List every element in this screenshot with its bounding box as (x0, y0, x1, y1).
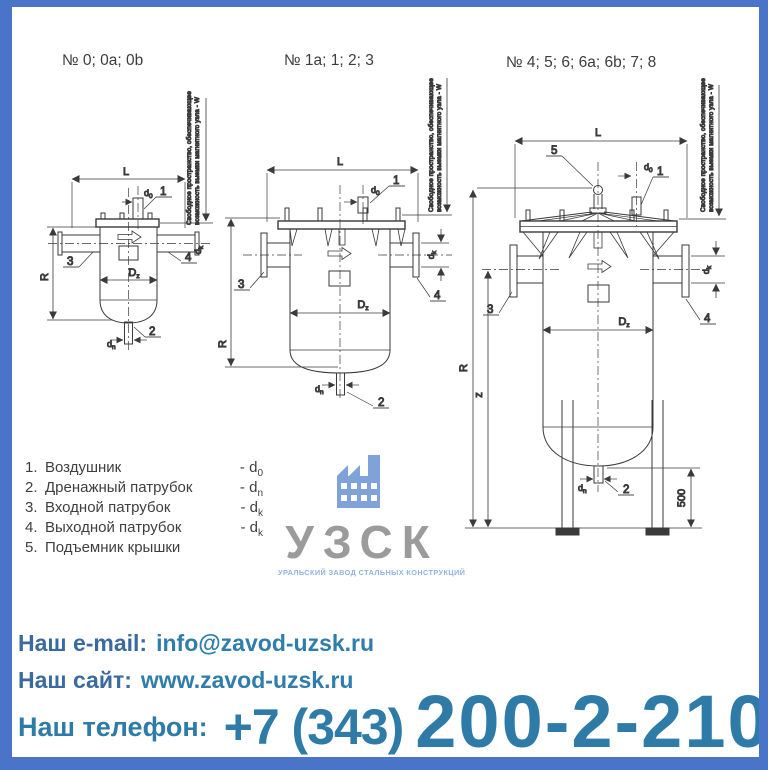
part-3-label: 3 (487, 304, 493, 316)
phone-row: Наш телефон: +7 (343) 200-2-210 (18, 694, 758, 750)
free-space-note-line2: возможность выемки магнитного узла - W (708, 83, 715, 212)
email-label: Наш e-mail: (18, 630, 147, 656)
dim-R: R (458, 364, 470, 372)
site-label: Наш сайт: (18, 667, 132, 693)
legend-item-3: 3. Входной патрубок - dk (25, 498, 263, 518)
drawing3-separator: Свободное пространство, обеспечивающее в… (458, 78, 726, 535)
uzsk-logo: УЗСК УРАЛЬСКИЙ ЗАВОД СТАЛЬНЫХ КОНСТРУКЦИ… (278, 450, 440, 577)
dim-dn: dn (578, 483, 587, 495)
drawing1-separator: Свободное пространство, обеспечивающее в… (39, 91, 213, 352)
drawing2-separator: Свободное пространство, обеспечивающее в… (217, 78, 452, 409)
factory-icon (330, 450, 388, 512)
dim-d0: d0 (644, 162, 653, 174)
part-5-label: 5 (551, 145, 557, 157)
free-space-note-line1: Свободное пространство, обеспечивающее (185, 91, 193, 225)
part-2-label: 2 (623, 484, 629, 496)
dim-z: z (473, 392, 485, 398)
free-space-note-line1: Свободное пространство, обеспечивающее (427, 78, 435, 212)
legend-item-2: 2. Дренажный патрубок - dn (25, 478, 263, 498)
dim-dn: dn (315, 384, 324, 396)
legend-item-4: 4. Выходной патрубок - dk (25, 518, 263, 538)
site-value: www.zavod-uzsk.ru (141, 667, 354, 693)
site-row: Наш сайт:www.zavod-uzsk.ru (18, 667, 353, 694)
dim-Dz: Dz (618, 316, 629, 329)
flyer-page: № 0; 0a; 0b № 1a; 1; 2; 3 № 4; 5; 6; 6a;… (0, 0, 768, 770)
dim-Dz: Dz (357, 299, 368, 312)
part-3-label: 3 (238, 279, 244, 291)
dim-d0: d0 (144, 188, 153, 200)
part-3-label: 3 (67, 256, 73, 268)
phone-number: 200-2-210 (415, 694, 768, 750)
dim-dn: dn (107, 339, 116, 351)
free-space-note-line1: Свободное пространство, обеспечивающее (699, 78, 707, 212)
email-row: Наш e-mail:info@zavod-uzsk.ru (18, 630, 374, 657)
email-value: info@zavod-uzsk.ru (156, 630, 374, 656)
dim-R: R (39, 273, 51, 281)
dim-L: L (123, 166, 129, 178)
free-space-note-line2: возможность выемки магнитного узла - W (436, 83, 443, 212)
phone-label: Наш телефон: (18, 712, 208, 743)
parts-legend: 1. Воздушник - d0 2. Дренажный патрубок … (25, 458, 263, 558)
dim-dk: dk (701, 265, 713, 274)
dim-leg-height: 500 (676, 489, 688, 507)
part-1-label: 1 (657, 166, 663, 178)
phone-area-code: +7 (343) (224, 707, 404, 747)
legend-item-1: 1. Воздушник - d0 (25, 458, 263, 478)
logo-acronym: УЗСК (284, 519, 440, 565)
part-2-label: 2 (378, 397, 384, 409)
part-4-label: 4 (434, 290, 441, 302)
free-space-note-line2: возможность выемки магнитного узла - W (194, 96, 201, 225)
part-1-label: 1 (393, 175, 399, 187)
dim-Dz: Dz (128, 267, 139, 280)
dim-L: L (595, 127, 601, 139)
part-1-label: 1 (160, 186, 166, 198)
legend-item-5: 5. Подъемник крышки (25, 538, 263, 558)
dim-dk: dk (426, 250, 438, 259)
part-4-label: 4 (185, 252, 192, 264)
part-4-label: 4 (704, 313, 711, 325)
logo-subtitle: УРАЛЬСКИЙ ЗАВОД СТАЛЬНЫХ КОНСТРУКЦИЙ (278, 568, 440, 577)
part-2-label: 2 (149, 326, 155, 338)
dim-L: L (337, 156, 343, 168)
dim-R: R (217, 340, 229, 348)
